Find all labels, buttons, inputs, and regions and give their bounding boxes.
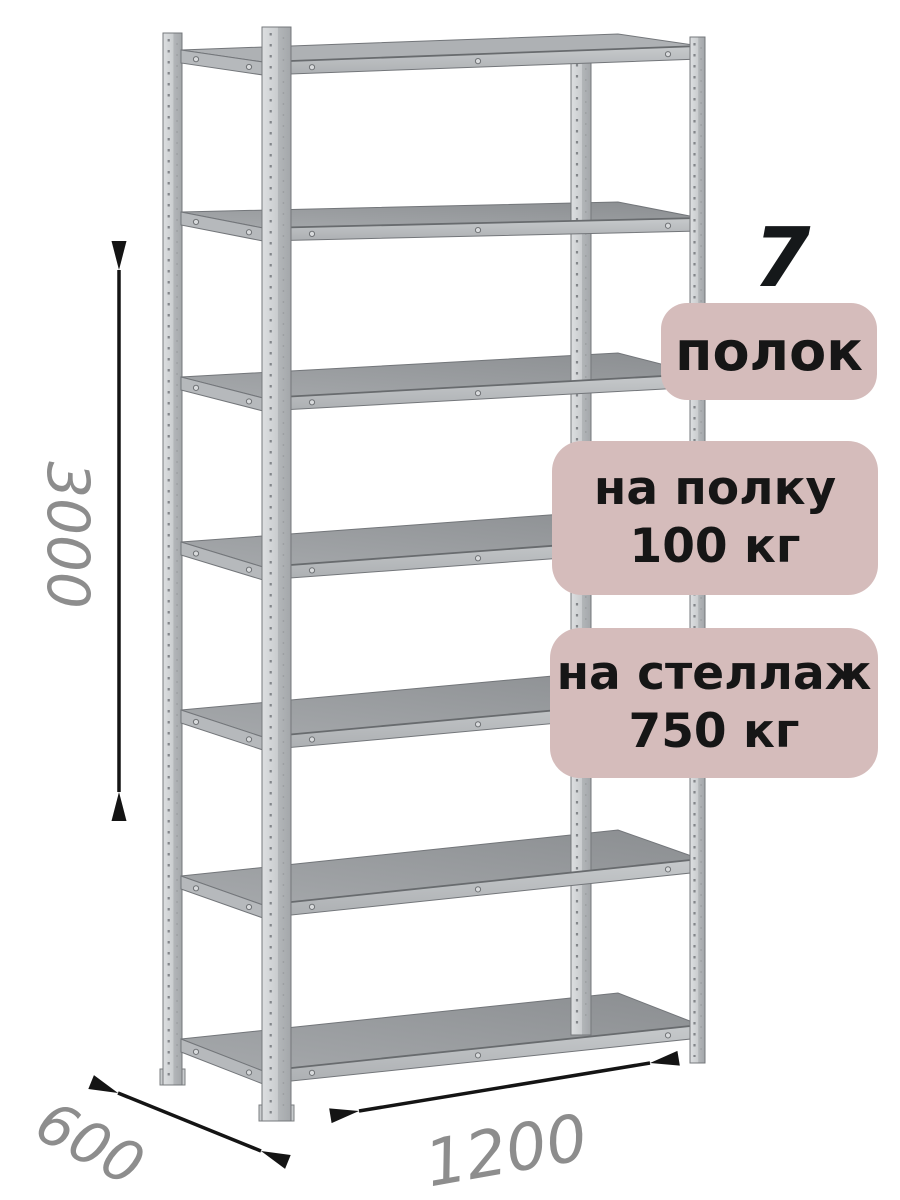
product-image: 3000 600 1200 7 полок на полку 100 кг на… xyxy=(0,0,900,1200)
rivet xyxy=(193,551,198,556)
badge-per-shelf-load: на полку 100 кг xyxy=(552,441,878,595)
rivet xyxy=(193,1049,198,1054)
rivet xyxy=(246,737,251,742)
dimension-width-label: 1200 xyxy=(420,1101,593,1200)
rivet xyxy=(193,219,198,224)
per-rack-load-line2: 750 кг xyxy=(629,703,800,761)
rivet xyxy=(246,64,251,69)
rivet xyxy=(246,1070,251,1075)
per-shelf-load-line1: на полку xyxy=(594,460,836,518)
rivet xyxy=(475,59,480,64)
rivet xyxy=(665,867,670,872)
dimension-depth-label: 600 xyxy=(25,1088,155,1200)
rivet xyxy=(475,227,480,232)
rack-illustration: 3000 600 1200 xyxy=(0,0,900,1200)
rivet xyxy=(309,65,314,70)
rivet xyxy=(309,400,314,405)
badge-shelf-count-label: полок xyxy=(675,320,863,383)
rivet xyxy=(475,1053,480,1058)
rivet xyxy=(309,1070,314,1075)
rivet xyxy=(475,556,480,561)
rivet xyxy=(193,57,198,62)
post-shade xyxy=(278,27,291,1121)
rivet xyxy=(193,886,198,891)
rivet xyxy=(665,223,670,228)
rivet xyxy=(309,231,314,236)
width-arrow xyxy=(359,1063,650,1111)
rivet xyxy=(246,567,251,572)
rivet xyxy=(193,719,198,724)
per-rack-load-line1: на стеллаж xyxy=(557,645,872,703)
rivet xyxy=(475,391,480,396)
per-shelf-load-line2: 100 кг xyxy=(630,518,801,576)
rivet xyxy=(665,1033,670,1038)
rivet xyxy=(475,887,480,892)
rivet xyxy=(475,722,480,727)
post-shade xyxy=(173,33,182,1085)
rivet xyxy=(309,904,314,909)
rivet xyxy=(246,230,251,235)
rack-back-posts xyxy=(160,33,185,1085)
rivet xyxy=(246,904,251,909)
rivet xyxy=(193,385,198,390)
rivet xyxy=(309,568,314,573)
rivet xyxy=(309,737,314,742)
rivet xyxy=(246,399,251,404)
shelf-count-number: 7 xyxy=(722,218,842,300)
rivet xyxy=(665,52,670,57)
badge-per-rack-load: на стеллаж 750 кг xyxy=(550,628,878,778)
badge-shelf-count: полок xyxy=(661,303,877,400)
dimension-height-label: 3000 xyxy=(34,461,102,609)
